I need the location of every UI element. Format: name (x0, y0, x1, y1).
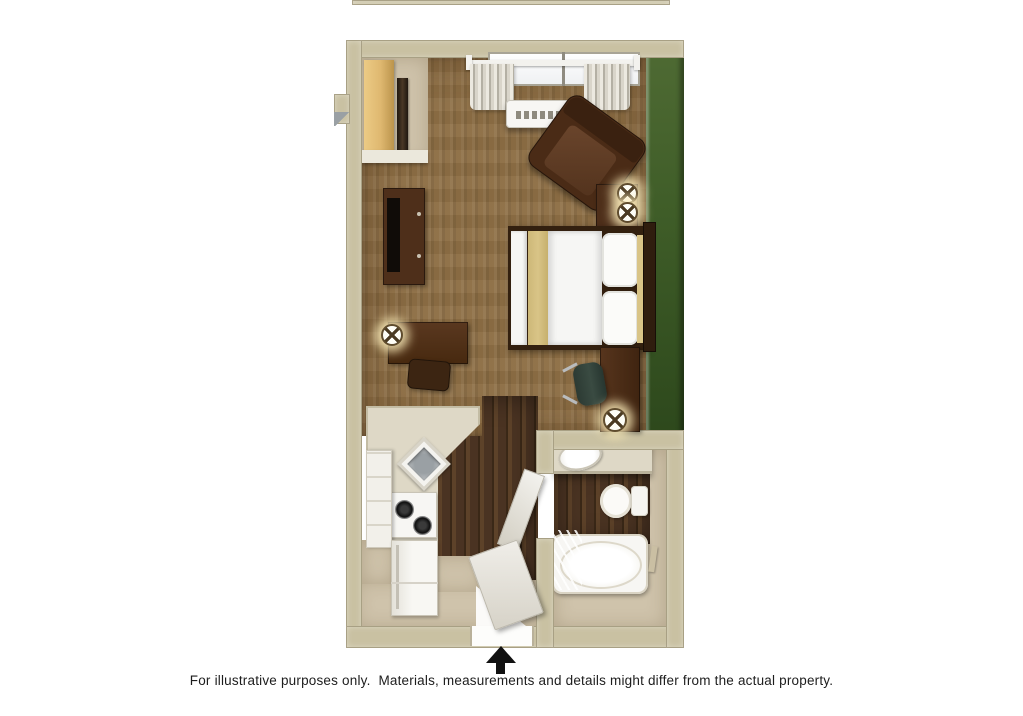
shower-curtain (552, 530, 582, 590)
floor-plan: For illustrative purposes only. Material… (0, 0, 1023, 716)
desk-chair (407, 358, 451, 392)
tv-stand-handle (417, 212, 421, 216)
north-arrow-icon (486, 646, 516, 674)
toilet (600, 482, 648, 520)
table-lamp-icon (603, 408, 627, 432)
wall-left (346, 40, 362, 648)
bed-pillow (602, 291, 638, 345)
table-lamp-icon (381, 324, 403, 346)
kitchen-cabinet (366, 450, 392, 548)
toilet-tank (631, 486, 648, 516)
closet-rod (397, 78, 408, 154)
headboard (643, 222, 656, 352)
wall-notch-shade (334, 112, 350, 126)
office-chair (560, 360, 606, 408)
kitchen-sink-basin (407, 447, 441, 481)
bathroom-divider-wall (538, 430, 684, 450)
refrigerator (391, 540, 438, 616)
refrigerator-door-split (391, 582, 438, 584)
table-lamp-icon (617, 202, 638, 223)
stove (389, 492, 437, 538)
bed (508, 226, 648, 350)
window-mullion (562, 52, 565, 86)
bathroom-hall-wall-upper (536, 430, 554, 474)
stove-burner (395, 500, 414, 519)
tv-screen (387, 198, 400, 272)
closet-shelf-edge (362, 150, 428, 163)
bed-pillow (602, 233, 638, 287)
bathroom-hall-wall-lower (536, 538, 554, 648)
toilet-bowl (600, 484, 632, 518)
entry-door-opening (470, 626, 534, 646)
top-trim (352, 0, 670, 5)
office-chair-leg (562, 394, 578, 404)
curtain-rod-finial-right (634, 55, 640, 70)
stove-burner (413, 516, 432, 535)
bed-runner (528, 231, 548, 345)
closet-shelf (364, 60, 394, 152)
bed-foot-linen (511, 231, 527, 345)
north-arrow-head (486, 646, 516, 663)
table-lamp-icon (617, 183, 638, 204)
wall-right (666, 436, 684, 648)
refrigerator-handle (396, 545, 399, 609)
tv-stand-handle (417, 254, 421, 258)
bed-duvet (548, 231, 602, 345)
caption: For illustrative purposes only. Material… (0, 673, 1023, 688)
tv-stand (383, 188, 425, 285)
office-chair-seat (572, 361, 609, 408)
